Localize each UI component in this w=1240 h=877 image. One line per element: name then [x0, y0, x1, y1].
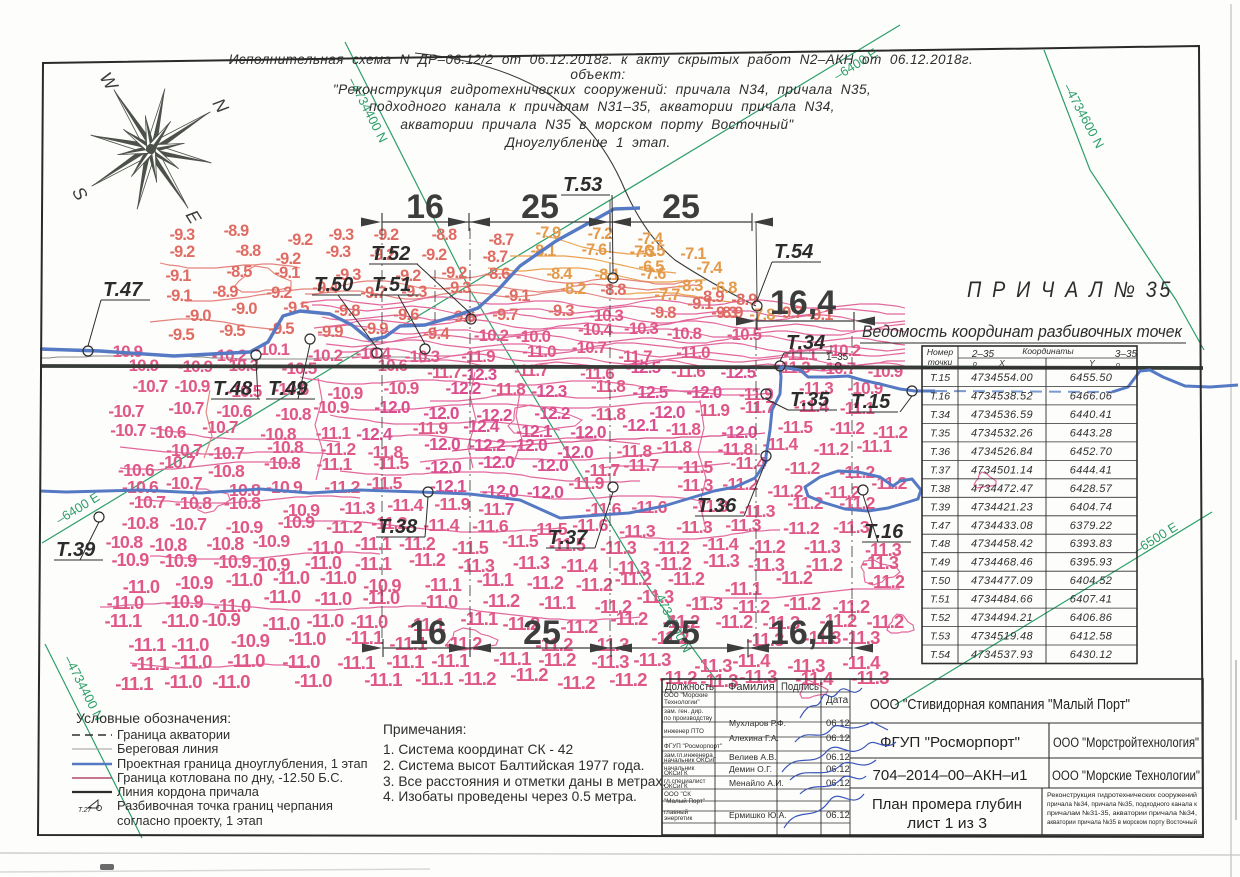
svg-text:-9.2: -9.2 [170, 243, 196, 261]
svg-text:-8.9: -8.9 [224, 222, 249, 240]
svg-text:-12.2: -12.2 [534, 403, 569, 423]
svg-text:-11.2: -11.2 [458, 668, 496, 689]
svg-text:-11.0: -11.0 [162, 610, 199, 631]
svg-text:Т.35: Т.35 [930, 427, 950, 439]
svg-text:-11.4: -11.4 [561, 556, 598, 576]
svg-text:ОКСиГК: ОКСиГК [664, 770, 688, 777]
svg-text:Т.15: Т.15 [851, 391, 891, 413]
svg-text:Мухларов Р.Ф.: Мухларов Р.Ф. [729, 718, 786, 728]
svg-text:Т.50: Т.50 [314, 274, 353, 296]
svg-text:Менайло А.И.: Менайло А.И. [729, 778, 784, 788]
svg-text:-10.8: -10.8 [175, 493, 212, 513]
svg-text:-11.1: -11.1 [317, 454, 353, 474]
svg-text:-12.1: -12.1 [622, 415, 659, 435]
svg-text:-11.1: -11.1 [539, 592, 576, 613]
svg-text:-11.7: -11.7 [740, 397, 774, 417]
svg-text:начальник ОКСиГ: начальник ОКСиГ [664, 757, 717, 764]
svg-text:-10.8: -10.8 [264, 453, 301, 473]
svg-text:Т.52: Т.52 [930, 612, 950, 624]
svg-text:06.12: 06.12 [826, 733, 850, 744]
svg-text:4734458.42: 4734458.42 [971, 538, 1033, 550]
svg-text:Т.49: Т.49 [930, 557, 950, 569]
svg-text:-11.0: -11.0 [264, 586, 301, 607]
svg-text:-10.8: -10.8 [106, 532, 144, 552]
svg-text:-12.0: -12.0 [511, 435, 547, 455]
svg-text:акватории причала №35 в морско: акватории причала №35 в морском порту Во… [1047, 818, 1197, 826]
svg-text:-11.2: -11.2 [787, 493, 823, 513]
svg-text:-10.1: -10.1 [255, 340, 290, 359]
svg-text:-8.2: -8.2 [560, 280, 586, 298]
svg-text:-11.8: -11.8 [657, 437, 693, 457]
svg-text:-11.2: -11.2 [814, 439, 849, 459]
svg-text:Граница котлована по дну, -12.: Граница котлована по дну, -12.50 Б.С. [117, 770, 343, 785]
svg-text:16: 16 [406, 188, 444, 226]
svg-text:-11.2: -11.2 [749, 537, 786, 557]
svg-text:-12.0: -12.0 [570, 422, 606, 442]
svg-text:-11.9: -11.9 [461, 347, 495, 366]
svg-text:-7.3: -7.3 [630, 243, 656, 261]
svg-text:2. Система высот Балтийская 19: 2. Система высот Балтийская 1977 года. [383, 758, 644, 773]
svg-text:6379.22: 6379.22 [1070, 520, 1113, 532]
svg-text:-11.2: -11.2 [783, 518, 820, 538]
svg-text:-7.4: -7.4 [696, 259, 723, 277]
svg-text:-12.0: -12.0 [424, 434, 460, 454]
svg-text:Примечания:: Примечания: [383, 722, 467, 737]
svg-text:-11.8: -11.8 [491, 380, 525, 399]
svg-text:-11.0: -11.0 [294, 670, 332, 691]
svg-text:6444.41: 6444.41 [1070, 464, 1113, 476]
svg-text:акватории причала N35 в м: акватории причала N35 в морском порту Во… [400, 117, 794, 132]
svg-text:-10.5: -10.5 [282, 359, 317, 378]
svg-text:Т.15: Т.15 [930, 372, 950, 384]
svg-text:План промера глубин: План промера глубин [872, 796, 1022, 813]
svg-text:-11.2: -11.2 [409, 550, 446, 570]
svg-text:-11.7: -11.7 [514, 361, 548, 380]
svg-text:-10.7: -10.7 [170, 514, 207, 534]
svg-text:6440.41: 6440.41 [1070, 409, 1113, 421]
svg-text:4734484.66: 4734484.66 [971, 594, 1034, 606]
svg-text:П Р И Ч А Л № 35: П Р И Ч А Л № 35 [967, 277, 1173, 302]
svg-text:-10.7: -10.7 [572, 338, 607, 357]
svg-text:"Малый Порт": "Малый Порт" [664, 797, 705, 805]
svg-text:-10.7: -10.7 [133, 377, 168, 396]
svg-text:-11.1: -11.1 [115, 673, 153, 694]
svg-text:-11.0: -11.0 [522, 342, 556, 361]
svg-text:-11.0: -11.0 [315, 588, 352, 609]
svg-text:-10.7: -10.7 [202, 417, 238, 437]
svg-text:Т.37: Т.37 [930, 464, 951, 476]
svg-text:-9.3: -9.3 [170, 226, 195, 244]
svg-text:Исполнительная схема N ДР–0: Исполнительная схема N ДР–06.12/2 от 06.… [229, 52, 973, 67]
svg-text:-9.5: -9.5 [219, 321, 245, 340]
svg-text:-10.9: -10.9 [202, 609, 240, 630]
svg-text:Линия кордона причала: Линия кордона причала [117, 784, 260, 799]
svg-text:ООО "Морские Технологии": ООО "Морские Технологии" [1052, 768, 1200, 783]
svg-text:-11.8: -11.8 [591, 377, 625, 396]
svg-text:4734537.93: 4734537.93 [971, 649, 1034, 661]
svg-text:о: о [1116, 362, 1120, 369]
svg-text:-9.3: -9.3 [548, 301, 574, 320]
svg-text:-9.4: -9.4 [423, 324, 450, 343]
svg-text:1. Система координат СК - 42: 1. Система координат СК - 42 [383, 742, 573, 757]
svg-text:1–35: 1–35 [826, 352, 849, 363]
svg-text:-9.2: -9.2 [288, 231, 313, 249]
svg-text:06.12: 06.12 [826, 810, 850, 821]
svg-text:-12.3: -12.3 [532, 382, 567, 401]
svg-text:Координаты: Координаты [1022, 346, 1074, 356]
svg-text:-11.6: -11.6 [671, 362, 705, 381]
svg-text:Т.35: Т.35 [790, 389, 830, 411]
svg-text:-11.3: -11.3 [842, 627, 880, 648]
svg-text:-10.7: -10.7 [108, 401, 143, 421]
svg-text:-11.2: -11.2 [527, 573, 564, 593]
svg-text:-11.3: -11.3 [513, 553, 550, 573]
svg-text:-7.6: -7.6 [582, 241, 608, 259]
svg-text:3. Все расстояния и отметки да: 3. Все расстояния и отметки даны в метра… [383, 774, 666, 789]
svg-text:-10.6: -10.6 [150, 422, 186, 442]
svg-text:Номер: Номер [927, 347, 953, 357]
svg-text:Т.39: Т.39 [930, 501, 950, 513]
svg-text:-10.7: -10.7 [159, 452, 195, 472]
svg-text:-9.1: -9.1 [274, 264, 300, 282]
svg-text:06.12: 06.12 [826, 752, 850, 763]
svg-text:Т.34: Т.34 [930, 409, 950, 421]
svg-text:6393.83: 6393.83 [1070, 538, 1113, 550]
svg-text:-10.8: -10.8 [275, 404, 311, 424]
svg-text:-11.0: -11.0 [363, 587, 400, 608]
svg-text:Ермишко Ю.А.: Ермишко Ю.А. [729, 810, 787, 820]
svg-text:-9.5: -9.5 [168, 325, 194, 344]
svg-text:3–35: 3–35 [1115, 349, 1138, 360]
svg-text:-11.3: -11.3 [862, 553, 899, 573]
svg-text:-8.8: -8.8 [432, 226, 457, 244]
svg-text:6395.93: 6395.93 [1070, 557, 1113, 569]
svg-text:4734472.47: 4734472.47 [971, 483, 1034, 495]
svg-text:-10.8: -10.8 [208, 461, 245, 481]
svg-text:-11.5: -11.5 [502, 531, 539, 551]
svg-text:Демин О.Г.: Демин О.Г. [729, 764, 772, 774]
svg-text:06.12: 06.12 [826, 764, 850, 775]
svg-text:ОКСиГК: ОКСиГК [664, 783, 688, 790]
svg-text:-11.1: -11.1 [415, 668, 453, 689]
svg-text:16: 16 [409, 614, 447, 652]
svg-text:-9.2: -9.2 [422, 246, 448, 264]
svg-text:-9.0: -9.0 [185, 306, 211, 325]
svg-text:-11.0: -11.0 [174, 651, 212, 672]
svg-text:-11.8: -11.8 [666, 419, 702, 439]
svg-text:4734433.08: 4734433.08 [971, 520, 1034, 532]
svg-text:ООО "Стивидорная компания "Мал: ООО "Стивидорная компания "Малый Порт" [870, 696, 1130, 713]
svg-text:-11.2: -11.2 [576, 575, 613, 595]
svg-text:-10.7: -10.7 [168, 398, 203, 418]
svg-text:-11.7: -11.7 [624, 455, 659, 475]
svg-text:-10.9: -10.9 [313, 397, 348, 417]
svg-text:-11.0: -11.0 [226, 570, 263, 590]
svg-text:Т.51: Т.51 [372, 274, 411, 296]
svg-text:-11.4: -11.4 [387, 495, 423, 515]
svg-text:инженер ПТО: инженер ПТО [664, 728, 704, 735]
svg-text:Т.39: Т.39 [56, 539, 96, 561]
svg-text:-11.2: -11.2 [557, 672, 595, 693]
svg-text:6466.06: 6466.06 [1070, 391, 1113, 403]
svg-text:-9.3: -9.3 [329, 226, 354, 244]
svg-text:Фамилия: Фамилия [728, 681, 775, 693]
svg-text:-10.7: -10.7 [110, 420, 146, 440]
svg-text:6430.12: 6430.12 [1070, 649, 1113, 661]
svg-text:Т.36: Т.36 [930, 446, 950, 458]
svg-text:-11.0: -11.0 [320, 568, 357, 588]
svg-text:-9.0: -9.0 [231, 299, 257, 318]
svg-text:4734421.23: 4734421.23 [971, 501, 1034, 513]
svg-text:06.12: 06.12 [826, 778, 850, 789]
svg-text:-7.6: -7.6 [640, 265, 666, 283]
svg-text:-12.4: -12.4 [463, 416, 500, 436]
svg-text:Разбивочная точка границ черпа: Разбивочная точка границ черпания [117, 798, 333, 813]
svg-text:Велиев А.В.: Велиев А.В. [729, 752, 777, 762]
svg-text:16,4: 16,4 [770, 614, 836, 652]
svg-text:Т.54: Т.54 [930, 649, 950, 661]
svg-text:Ведомость координат разбивоч: Ведомость координат разбивочных точек [862, 322, 1183, 341]
svg-text:Т.48: Т.48 [930, 538, 950, 550]
svg-text:-10.2: -10.2 [474, 326, 509, 345]
svg-text:-9.2: -9.2 [374, 226, 399, 244]
svg-text:-10.9: -10.9 [159, 551, 197, 571]
svg-text:-10.3: -10.3 [624, 319, 659, 338]
svg-text:-11.2: -11.2 [830, 418, 865, 438]
svg-text:-11.3: -11.3 [703, 551, 740, 571]
svg-text:-11.2: -11.2 [785, 458, 821, 478]
svg-text:4734536.59: 4734536.59 [971, 409, 1033, 421]
svg-text:-11.2: -11.2 [510, 664, 548, 685]
svg-text:-10.7: -10.7 [129, 492, 166, 512]
svg-text:-11.2: -11.2 [776, 568, 813, 588]
svg-text:-11.2: -11.2 [668, 569, 705, 589]
svg-text:Т.51: Т.51 [930, 594, 950, 606]
svg-text:6452.70: 6452.70 [1070, 446, 1113, 458]
svg-text:причала №34, причала №35, подх: причала №34, причала №35, подходного кан… [1047, 801, 1197, 808]
svg-text:Т.16: Т.16 [864, 521, 904, 543]
svg-text:25: 25 [521, 188, 559, 226]
svg-text:25: 25 [523, 614, 561, 652]
svg-text:-8.8: -8.8 [236, 242, 262, 260]
svg-text:Граница акватории: Граница акватории [117, 727, 230, 742]
svg-text:подходного канала к причал: подходного канала к причалам N31–35, акв… [369, 99, 835, 114]
svg-text:-9.9: -9.9 [317, 322, 343, 341]
svg-text:-11.2: -11.2 [324, 477, 360, 497]
svg-text:-11.9: -11.9 [695, 400, 729, 420]
svg-text:Т.38: Т.38 [930, 483, 950, 495]
svg-text:-11.1: -11.1 [461, 608, 498, 629]
svg-text:-11.1: -11.1 [477, 570, 514, 590]
svg-text:-11.0: -11.0 [273, 568, 310, 588]
svg-text:причалам №31-35, акватории при: причалам №31-35, акватории причала №34, [1047, 810, 1197, 817]
svg-text:-10.8: -10.8 [122, 513, 159, 533]
svg-text:-11.0: -11.0 [164, 671, 202, 692]
svg-text:704–2014–00–АКН–и1: 704–2014–00–АКН–и1 [873, 767, 1028, 784]
svg-text:-12.0: -12.0 [374, 397, 409, 417]
svg-text:-9.7: -9.7 [492, 305, 518, 324]
svg-text:-12.0: -12.0 [532, 455, 569, 475]
svg-text:Условные обозначения:: Условные обозначения: [76, 710, 231, 726]
svg-text:Т.16: Т.16 [930, 391, 950, 403]
svg-text:-12.0: -12.0 [478, 452, 515, 472]
svg-text:6412.58: 6412.58 [1070, 631, 1113, 643]
svg-text:-10.9: -10.9 [253, 531, 291, 551]
svg-text:-11.9: -11.9 [568, 473, 604, 493]
svg-text:ФГУП "Росморпорт": ФГУП "Росморпорт" [880, 734, 1020, 751]
svg-text:-11.3: -11.3 [637, 586, 674, 607]
svg-text:4734494.21: 4734494.21 [971, 612, 1033, 624]
svg-text:4734468.46: 4734468.46 [971, 557, 1034, 569]
svg-text:ООО "Морские: ООО "Морские [664, 692, 708, 699]
svg-text:-11.4: -11.4 [423, 515, 459, 535]
svg-text:-9.1: -9.1 [504, 287, 530, 305]
svg-text:Т.27: Т.27 [78, 807, 92, 814]
svg-text:2–35: 2–35 [971, 349, 995, 360]
svg-text:-9.6: -9.6 [393, 305, 419, 324]
svg-text:-8.7: -8.7 [489, 231, 514, 249]
svg-text:-11.2: -11.2 [784, 593, 821, 614]
svg-text:зам. ген. дир.: зам. ген. дир. [664, 708, 704, 715]
svg-text:Алехина Г.А.: Алехина Г.А. [729, 733, 779, 743]
svg-text:-11.1: -11.1 [105, 610, 142, 631]
svg-text:Технологии": Технологии" [664, 699, 700, 706]
svg-text:Т.36: Т.36 [697, 495, 737, 517]
svg-text:X: X [998, 358, 1005, 368]
svg-text:-11.0: -11.0 [421, 591, 458, 612]
svg-text:6455.50: 6455.50 [1070, 372, 1113, 384]
svg-text:4734554.00: 4734554.00 [971, 372, 1034, 384]
svg-text:-11.1: -11.1 [364, 669, 402, 690]
svg-text:6404.74: 6404.74 [1070, 501, 1113, 513]
svg-text:-12.5: -12.5 [633, 383, 669, 402]
svg-text:-10.7: -10.7 [208, 443, 244, 463]
svg-text:Т.38: Т.38 [378, 516, 418, 538]
svg-text:-11.1: -11.1 [857, 436, 893, 456]
svg-text:о: о [973, 361, 977, 368]
svg-text:-10.8: -10.8 [667, 324, 702, 343]
svg-text:4734532.26: 4734532.26 [971, 427, 1034, 439]
svg-text:Т.52: Т.52 [371, 243, 410, 265]
svg-text:4734526.84: 4734526.84 [971, 446, 1033, 458]
svg-text:-12.2: -12.2 [446, 379, 481, 398]
svg-text:-7.7: -7.7 [654, 286, 680, 304]
svg-text:-11.0: -11.0 [676, 343, 710, 362]
svg-text:-11.0: -11.0 [288, 628, 326, 649]
svg-text:6428.57: 6428.57 [1070, 483, 1113, 495]
svg-text:Дноуглубление 1 этап.: Дноуглубление 1 этап. [503, 135, 670, 150]
svg-text:-10.9: -10.9 [175, 377, 210, 396]
svg-text:-10.9: -10.9 [266, 477, 303, 497]
svg-text:-11.3: -11.3 [804, 537, 841, 557]
svg-text:согласно проекту, 1 этап: согласно проекту, 1 этап [117, 813, 263, 828]
svg-text:-11.3: -11.3 [339, 498, 375, 518]
svg-text:Реконструкция гидротехнических: Реконструкция гидротехнических сооружени… [1047, 791, 1197, 799]
svg-text:6443.28: 6443.28 [1070, 427, 1113, 439]
svg-text:-11.1: -11.1 [128, 634, 166, 655]
svg-text:-10.8: -10.8 [206, 534, 244, 554]
svg-text:-11.0: -11.0 [227, 650, 265, 671]
svg-text:-11.2: -11.2 [609, 669, 647, 690]
svg-text:объект:: объект: [570, 67, 625, 82]
svg-text:-11.3: -11.3 [600, 538, 637, 558]
svg-text:-10.9: -10.9 [165, 591, 203, 612]
svg-text:-11.3: -11.3 [851, 667, 889, 688]
svg-text:4. Изобаты проведены через 0.5: 4. Изобаты проведены через 0.5 метра. [383, 789, 637, 804]
svg-text:ООО "Морстройтехнология": ООО "Морстройтехнология" [1053, 735, 1199, 750]
svg-text:25: 25 [662, 188, 700, 226]
svg-text:-12.0: -12.0 [527, 482, 564, 502]
svg-text:Т.53: Т.53 [930, 631, 950, 643]
svg-text:Т.37: Т.37 [548, 527, 588, 549]
svg-text:-10.9: -10.9 [111, 550, 149, 570]
svg-text:-8.8: -8.8 [600, 281, 626, 299]
svg-text:-10.8: -10.8 [224, 493, 261, 513]
svg-text:-11.2: -11.2 [868, 572, 905, 592]
svg-text:6407.41: 6407.41 [1070, 594, 1113, 606]
svg-text:-10.9: -10.9 [278, 512, 315, 532]
svg-text:4734501.14: 4734501.14 [971, 464, 1033, 476]
svg-text:Т.48: Т.48 [213, 378, 253, 400]
svg-text:ООО "СК: ООО "СК [664, 791, 691, 798]
svg-text:25: 25 [662, 614, 700, 652]
svg-text:Т.47: Т.47 [103, 279, 143, 301]
svg-text:-11.2: -11.2 [611, 608, 648, 629]
svg-text:по производству: по производству [664, 715, 713, 722]
svg-text:точки: точки [928, 357, 953, 367]
svg-text:16,4: 16,4 [770, 284, 836, 322]
svg-text:-10.4: -10.4 [578, 320, 614, 339]
svg-text:лист 1 из 3: лист 1 из 3 [907, 815, 987, 832]
svg-text:Береговая линия: Береговая линия [117, 741, 218, 756]
svg-text:-10.9: -10.9 [175, 573, 213, 593]
svg-text:-12.0: -12.0 [425, 457, 462, 477]
svg-text:Проектная граница дноуглублени: Проектная граница дноуглубления, 1 этап [117, 756, 368, 771]
svg-text:-9.3: -9.3 [711, 303, 737, 322]
svg-text:-9.1: -9.1 [165, 267, 191, 285]
svg-text:-11.0: -11.0 [282, 651, 320, 672]
svg-text:-12.4: -12.4 [356, 424, 393, 444]
svg-text:-11.1: -11.1 [355, 554, 392, 574]
svg-text:Т.53: Т.53 [563, 174, 602, 196]
svg-text:-10.7: -10.7 [166, 473, 203, 493]
svg-text:-11.9: -11.9 [434, 494, 470, 514]
svg-text:-9.1: -9.1 [166, 287, 192, 305]
svg-text:-10.9: -10.9 [231, 630, 270, 651]
svg-text:-10.9: -10.9 [384, 379, 419, 398]
svg-text:-10.9: -10.9 [213, 552, 251, 572]
svg-text:-9.3: -9.3 [326, 243, 352, 261]
svg-text:Т.47: Т.47 [930, 520, 951, 532]
svg-text:6406.86: 6406.86 [1070, 612, 1113, 624]
svg-text:Т.50: Т.50 [930, 575, 950, 587]
svg-text:4734477.09: 4734477.09 [971, 575, 1033, 587]
svg-text:-11.8: -11.8 [591, 404, 626, 424]
svg-text:4734538.52: 4734538.52 [971, 391, 1033, 403]
svg-text:Т.54: Т.54 [774, 241, 813, 263]
svg-text:"Реконструкция гидротехническ: "Реконструкция гидротехнических сооружен… [333, 82, 871, 97]
svg-text:6404.52: 6404.52 [1070, 575, 1113, 587]
svg-text:Подпись: Подпись [781, 681, 819, 693]
svg-text:-11.5: -11.5 [374, 453, 410, 473]
svg-text:4734519.48: 4734519.48 [971, 631, 1034, 643]
svg-text:энергетик: энергетик [664, 815, 693, 822]
svg-text:ФГУП "Росморпорт": ФГУП "Росморпорт" [664, 743, 722, 750]
svg-text:-8.5: -8.5 [226, 263, 252, 281]
svg-text:-8.7: -8.7 [483, 248, 509, 266]
svg-text:-11.5: -11.5 [678, 457, 714, 477]
svg-text:Т.34: Т.34 [786, 332, 825, 354]
